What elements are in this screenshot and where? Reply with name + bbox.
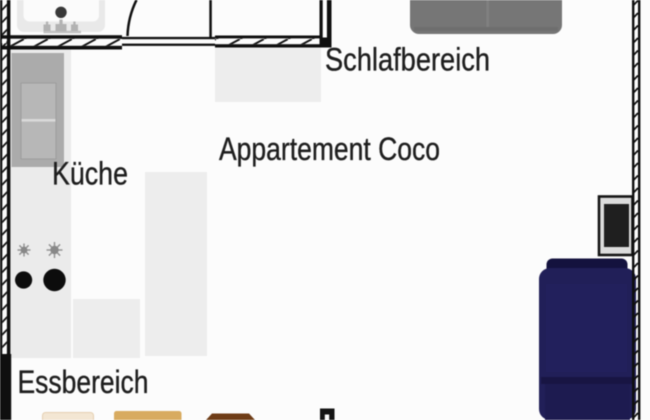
svg-text:Küche: Küche bbox=[52, 156, 128, 192]
svg-text:Schlafbereich: Schlafbereich bbox=[325, 42, 490, 78]
svg-text:Appartement Coco: Appartement Coco bbox=[219, 131, 440, 167]
svg-text:Essbereich: Essbereich bbox=[18, 364, 149, 400]
